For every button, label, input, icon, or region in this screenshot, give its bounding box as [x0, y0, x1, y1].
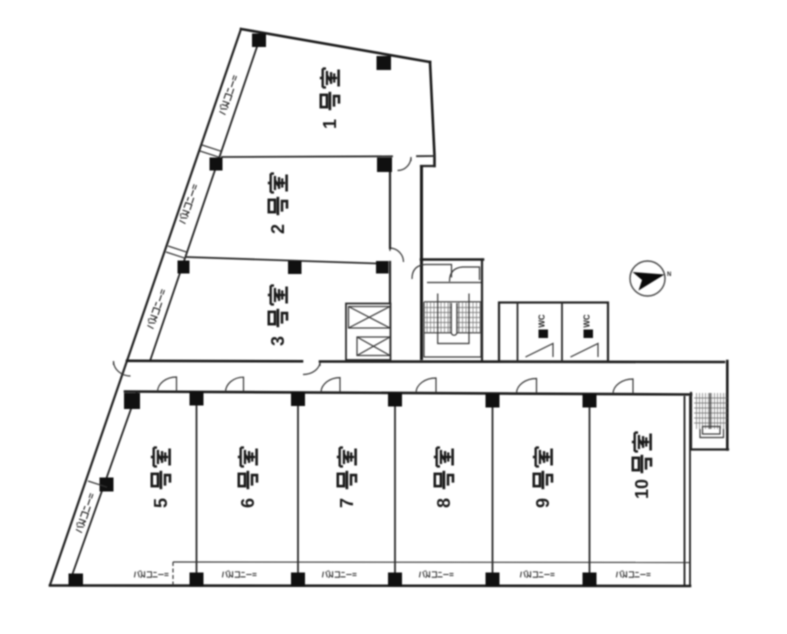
svg-text:2: 2: [268, 224, 288, 234]
svg-text:10: 10: [632, 479, 652, 499]
svg-text:5: 5: [151, 498, 171, 508]
svg-text:8: 8: [434, 498, 454, 508]
svg-text:3: 3: [268, 336, 288, 346]
svg-text:1: 1: [320, 119, 340, 129]
svg-text:WC: WC: [583, 314, 592, 328]
svg-text:7: 7: [337, 498, 357, 508]
svg-text:WC: WC: [538, 314, 547, 328]
svg-text:6: 6: [238, 498, 258, 508]
svg-text:N: N: [667, 272, 671, 278]
svg-text:9: 9: [533, 498, 553, 508]
